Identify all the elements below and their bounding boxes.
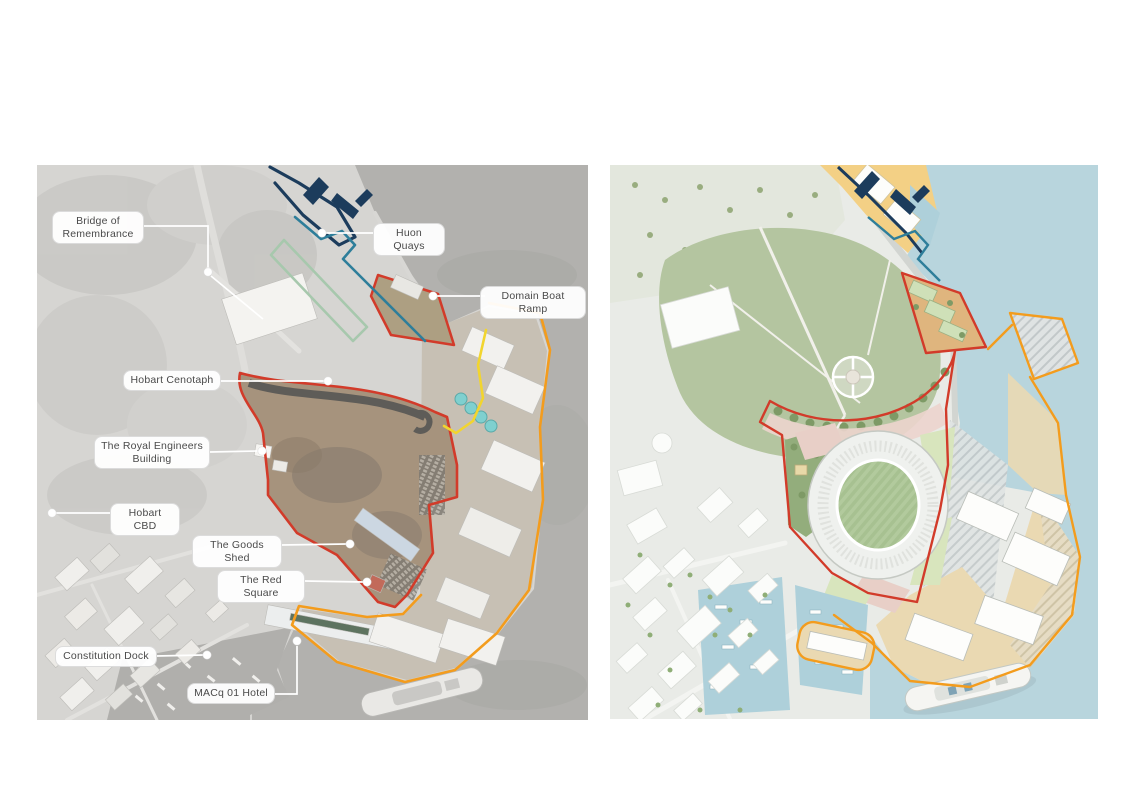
label-domain-boat-ramp: Domain Boat Ramp xyxy=(480,286,586,319)
label-hobart-cbd: Hobart CBD xyxy=(110,503,180,536)
label-huon-quays: Huon Quays xyxy=(373,223,445,256)
aerial-photo-panel: Bridge of Remembrance Huon Quays Domain … xyxy=(37,165,588,720)
stadium xyxy=(808,431,948,579)
figure-canvas: Bridge of Remembrance Huon Quays Domain … xyxy=(0,0,1131,800)
label-bridge-of-remembrance: Bridge of Remembrance xyxy=(52,211,144,244)
label-royal-engineers-building: The Royal Engineers Building xyxy=(94,436,210,469)
label-constitution-dock: Constitution Dock xyxy=(55,646,157,667)
label-hobart-cenotaph: Hobart Cenotaph xyxy=(123,370,221,391)
cenotaph-memorial xyxy=(833,357,873,397)
label-the-red-square: The Red Square xyxy=(217,570,305,603)
label-macq-01-hotel: MACq 01 Hotel xyxy=(187,683,275,704)
masterplan-map xyxy=(610,165,1098,719)
masterplan-panel xyxy=(610,165,1098,719)
label-the-goods-shed: The Goods Shed xyxy=(192,535,282,568)
